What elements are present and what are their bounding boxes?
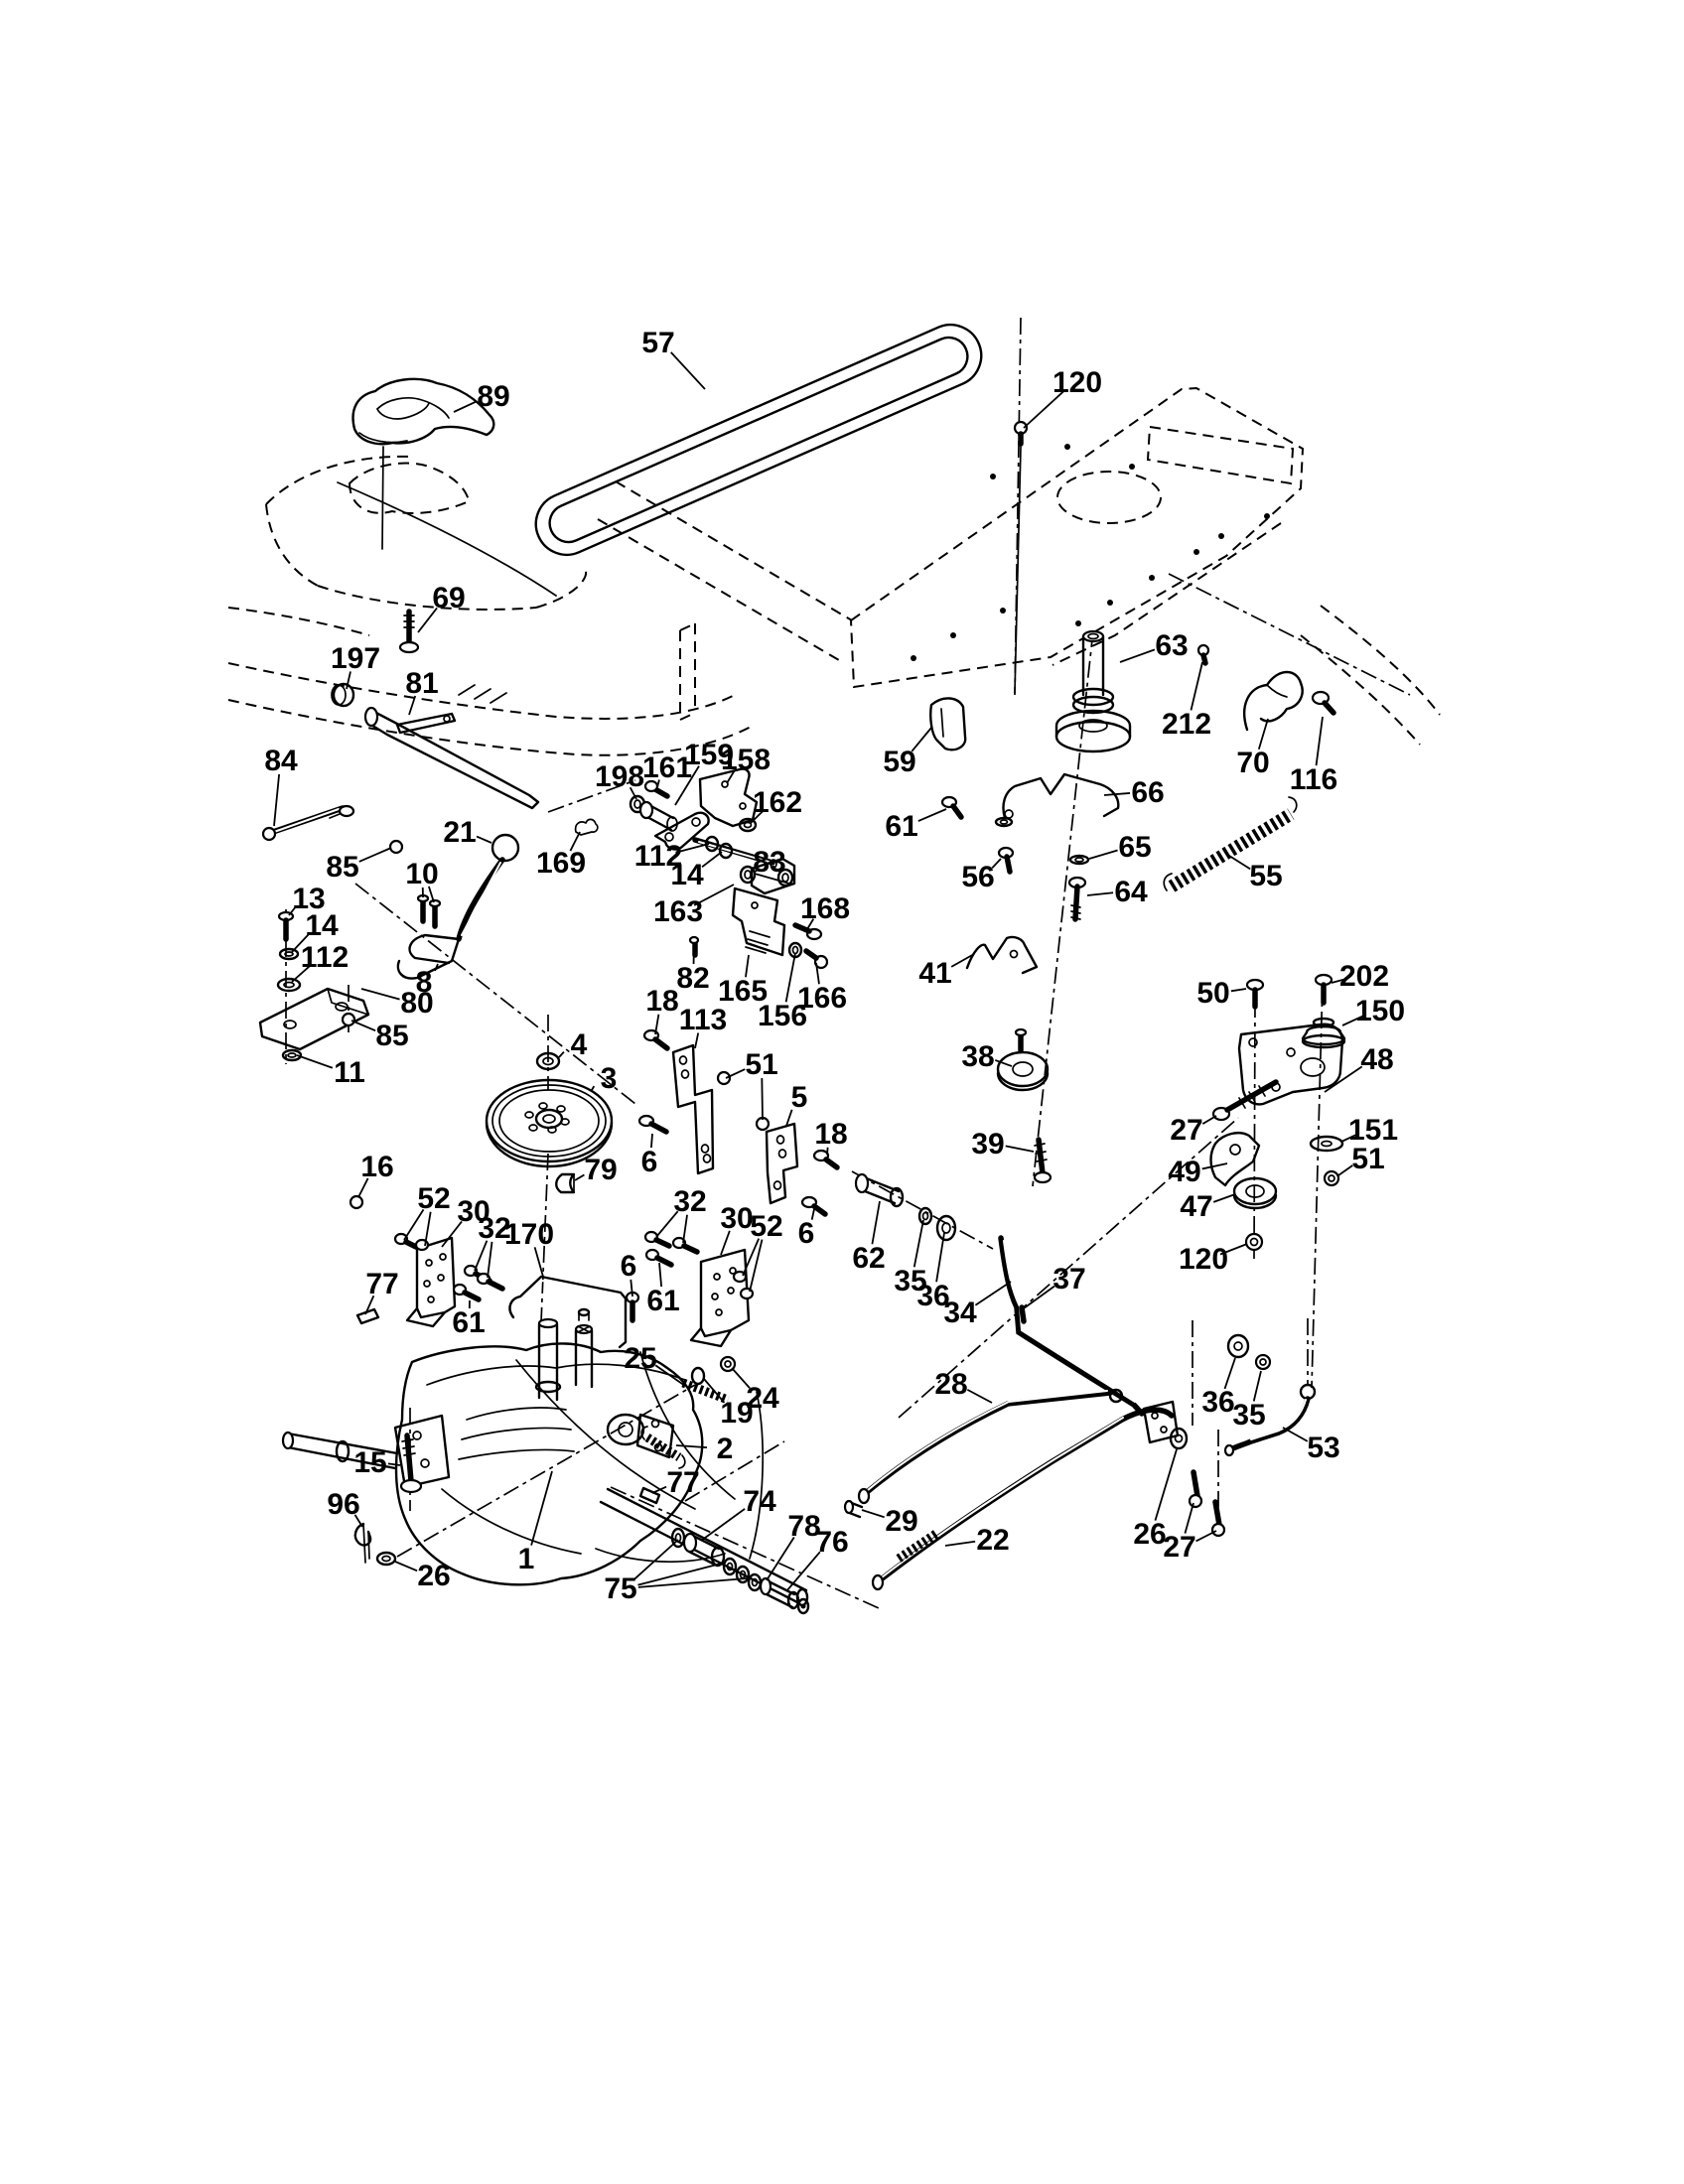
leader-line-61 <box>918 809 946 821</box>
leader-line-53 <box>1283 1428 1308 1441</box>
leader-line-79 <box>575 1174 584 1180</box>
part-label-2: 2 <box>717 1433 734 1465</box>
leader-line-35 <box>1254 1371 1261 1401</box>
leader-line-212 <box>1191 662 1202 710</box>
part-label-212: 212 <box>1162 708 1211 741</box>
part-label-48: 48 <box>1360 1043 1393 1076</box>
key-79 <box>556 1174 574 1192</box>
leader-line-27 <box>1196 1531 1216 1541</box>
nut-35b <box>1256 1355 1270 1369</box>
part-label-61: 61 <box>452 1306 485 1339</box>
diagram-page: 5789120691978184852110131411288085111981… <box>0 0 1684 2184</box>
leader-line-34 <box>975 1282 1011 1305</box>
part-label-49: 49 <box>1168 1156 1200 1188</box>
pin-96 <box>355 1524 370 1563</box>
part-label-55: 55 <box>1249 860 1282 892</box>
leader-line-15 <box>388 1463 400 1465</box>
part-label-28: 28 <box>934 1368 967 1401</box>
nut-85a <box>390 841 402 853</box>
leader-line-25 <box>655 1365 685 1386</box>
part-label-50: 50 <box>1196 977 1229 1010</box>
part-label-89: 89 <box>477 380 509 413</box>
bolt-15 <box>401 1435 421 1492</box>
washer-26a <box>377 1553 395 1565</box>
leader-line-27 <box>1202 1116 1216 1124</box>
part-label-38: 38 <box>961 1040 994 1073</box>
part-label-158: 158 <box>721 744 771 776</box>
leader-line-22 <box>945 1542 975 1546</box>
part-label-4: 4 <box>571 1028 588 1061</box>
part-label-61: 61 <box>646 1285 679 1317</box>
leader-line-26 <box>1155 1449 1177 1521</box>
leader-line-51 <box>762 1078 763 1120</box>
hardware-stack-13-14-112-11 <box>278 912 301 1060</box>
leader-line-11 <box>297 1055 333 1068</box>
part-label-6: 6 <box>798 1217 815 1250</box>
bolt-69 <box>400 612 418 652</box>
part-label-53: 53 <box>1307 1432 1339 1464</box>
idler-38-39 <box>998 1029 1051 1182</box>
leader-line-55 <box>1229 856 1250 869</box>
part-label-32: 32 <box>673 1185 706 1218</box>
bracket-113 <box>673 1045 713 1173</box>
leader-line-84 <box>274 774 279 826</box>
parts-diagram: 5789120691978184852110131411288085111981… <box>0 0 1684 2184</box>
nut-85b <box>343 1014 354 1025</box>
leader-line-39 <box>1006 1146 1034 1152</box>
part-label-65: 65 <box>1118 831 1151 864</box>
leader-line-27 <box>1185 1503 1193 1534</box>
part-label-120: 120 <box>1179 1243 1228 1276</box>
leader-line-116 <box>1317 717 1323 765</box>
leader-line-28 <box>967 1390 992 1403</box>
part-label-76: 76 <box>815 1526 848 1559</box>
support-170 <box>509 1277 626 1347</box>
leader-line-4 <box>559 1052 564 1057</box>
part-label-116: 116 <box>1290 763 1337 796</box>
leader-line-85 <box>351 1021 375 1030</box>
leader-line-62 <box>872 1201 880 1244</box>
washer-36b <box>1228 1335 1248 1357</box>
shift-lever-8 <box>398 835 518 979</box>
washer-26b <box>1171 1429 1187 1448</box>
part-label-163: 163 <box>653 895 703 928</box>
part-label-16: 16 <box>360 1151 393 1183</box>
spring-2 <box>641 1427 685 1468</box>
part-label-10: 10 <box>405 858 438 890</box>
drag-link-84 <box>263 806 353 840</box>
part-label-36: 36 <box>1201 1386 1234 1419</box>
part-label-18: 18 <box>645 985 678 1018</box>
part-label-21: 21 <box>443 816 476 849</box>
part-label-80: 80 <box>400 987 433 1020</box>
part-label-120: 120 <box>1052 366 1102 399</box>
leader-line-47 <box>1213 1194 1235 1202</box>
leader-line-3 <box>592 1086 594 1090</box>
leader-line-51 <box>1338 1165 1352 1175</box>
clamp-197 <box>332 684 353 706</box>
leader-line-61 <box>659 1263 661 1287</box>
part-label-27: 27 <box>1163 1531 1195 1564</box>
drive-belt <box>526 315 991 564</box>
leader-line-48 <box>1325 1066 1362 1092</box>
part-label-52: 52 <box>417 1182 450 1215</box>
part-label-85: 85 <box>375 1020 408 1052</box>
part-label-29: 29 <box>885 1505 917 1538</box>
part-label-27: 27 <box>1170 1114 1202 1147</box>
part-label-47: 47 <box>1180 1190 1212 1223</box>
part-label-83: 83 <box>753 846 785 879</box>
leader-lines <box>274 352 1363 1591</box>
leader-line-50 <box>1231 989 1246 991</box>
leader-line-32 <box>683 1215 687 1243</box>
part-label-79: 79 <box>584 1154 617 1186</box>
stack-63 <box>1056 631 1130 751</box>
part-label-75: 75 <box>604 1572 636 1605</box>
leader-line-52 <box>425 1212 431 1246</box>
part-label-34: 34 <box>943 1297 977 1329</box>
part-label-69: 69 <box>432 582 465 614</box>
part-label-77: 77 <box>666 1466 699 1499</box>
leader-line-78 <box>767 1538 794 1580</box>
leader-line-57 <box>671 352 705 389</box>
leader-line-36 <box>936 1233 944 1282</box>
idler-arm-cluster <box>1211 975 1345 1250</box>
leader-line-64 <box>1087 892 1113 895</box>
hardware-65-64-56 <box>996 818 1088 919</box>
part-label-22: 22 <box>976 1524 1009 1557</box>
part-label-82: 82 <box>676 962 709 995</box>
part-label-77: 77 <box>365 1268 398 1300</box>
part-label-25: 25 <box>624 1342 656 1375</box>
part-label-59: 59 <box>883 746 915 778</box>
part-label-52: 52 <box>750 1210 782 1243</box>
part-label-162: 162 <box>753 786 802 819</box>
leader-line-63 <box>1120 649 1155 662</box>
part-label-3: 3 <box>601 1062 618 1095</box>
part-labels: 5789120691978184852110131411288085111981… <box>264 327 1405 1605</box>
leader-line-37 <box>1024 1287 1054 1308</box>
part-label-170: 170 <box>504 1218 554 1251</box>
part-label-30: 30 <box>720 1202 753 1235</box>
belt-keeper-66 <box>1003 774 1118 818</box>
part-label-24: 24 <box>746 1382 779 1415</box>
bracket-5 <box>767 1124 797 1203</box>
part-label-197: 197 <box>331 642 380 675</box>
part-label-81: 81 <box>405 667 438 700</box>
leader-line-32 <box>488 1242 492 1278</box>
leader-line-36 <box>1224 1358 1235 1389</box>
leader-line-35 <box>914 1220 923 1267</box>
part-label-63: 63 <box>1155 629 1188 662</box>
leader-line-21 <box>477 837 491 843</box>
part-label-156: 156 <box>758 1000 807 1032</box>
part-label-84: 84 <box>264 745 298 777</box>
part-label-61: 61 <box>885 810 917 843</box>
part-label-113: 113 <box>679 1004 727 1036</box>
bolts-10 <box>418 895 440 926</box>
part-label-6: 6 <box>641 1146 658 1178</box>
nut-16 <box>351 1196 362 1208</box>
leader-line-165 <box>746 955 749 977</box>
part-label-37: 37 <box>1052 1263 1085 1296</box>
leader-line-26 <box>395 1562 417 1570</box>
leader-line-156 <box>786 953 795 1002</box>
leader-line-170 <box>535 1247 543 1277</box>
part-label-202: 202 <box>1339 960 1389 993</box>
part-label-62: 62 <box>852 1242 885 1275</box>
part-label-26: 26 <box>1133 1518 1166 1551</box>
leader-line-32 <box>475 1241 487 1271</box>
leader-line-74 <box>701 1509 745 1541</box>
leader-line-65 <box>1089 851 1118 859</box>
leader-line-14 <box>702 852 722 867</box>
part-label-64: 64 <box>1114 876 1148 908</box>
bracket-80 <box>260 989 368 1049</box>
bracket-30-right <box>627 1232 753 1346</box>
leader-line-70 <box>1259 719 1268 750</box>
part-label-66: 66 <box>1131 776 1164 809</box>
link-70 <box>1244 672 1302 730</box>
screw-212 <box>1198 645 1208 663</box>
part-label-14: 14 <box>305 909 339 942</box>
belt-guide-41 <box>967 937 1037 973</box>
part-label-169: 169 <box>536 847 586 880</box>
part-label-112: 112 <box>301 941 349 974</box>
part-label-1: 1 <box>518 1543 535 1575</box>
part-label-35: 35 <box>1232 1399 1265 1432</box>
part-label-51: 51 <box>1351 1143 1384 1175</box>
pin-82 <box>690 937 698 943</box>
part-label-6: 6 <box>621 1250 637 1283</box>
part-label-168: 168 <box>800 892 850 925</box>
part-label-5: 5 <box>791 1081 808 1114</box>
part-label-74: 74 <box>743 1485 776 1518</box>
leader-line-89 <box>454 401 477 412</box>
part-label-18: 18 <box>814 1118 847 1151</box>
leader-line-66 <box>1104 793 1130 795</box>
part-label-85: 85 <box>326 851 358 884</box>
part-label-70: 70 <box>1236 747 1269 779</box>
leader-line-75 <box>638 1578 747 1587</box>
part-label-39: 39 <box>971 1128 1004 1160</box>
part-label-57: 57 <box>641 327 674 359</box>
part-label-198: 198 <box>595 760 644 793</box>
part-label-96: 96 <box>327 1488 359 1521</box>
part-label-56: 56 <box>961 861 994 893</box>
bracket-165 <box>733 888 784 955</box>
part-label-51: 51 <box>745 1048 777 1081</box>
lift-shaft-81 <box>365 708 538 808</box>
pin-37 <box>1022 1307 1024 1321</box>
part-label-150: 150 <box>1355 995 1405 1027</box>
leader-line-85 <box>359 848 391 862</box>
leader-line-29 <box>862 1510 885 1517</box>
part-label-41: 41 <box>918 957 951 990</box>
ferrule-29 <box>845 1501 853 1513</box>
leader-line-1 <box>531 1471 552 1546</box>
belt-keeper-59 <box>930 698 965 817</box>
part-label-15: 15 <box>353 1446 386 1479</box>
leader-line-49 <box>1202 1163 1227 1168</box>
fender-dashed-outline <box>228 457 755 755</box>
bushing-19 <box>692 1368 704 1384</box>
bolt-116 <box>1313 692 1333 713</box>
key-77a <box>357 1309 378 1323</box>
part-label-26: 26 <box>417 1560 450 1592</box>
leader-line-80 <box>361 989 400 1000</box>
part-label-14: 14 <box>670 859 704 891</box>
part-label-11: 11 <box>334 1056 365 1089</box>
